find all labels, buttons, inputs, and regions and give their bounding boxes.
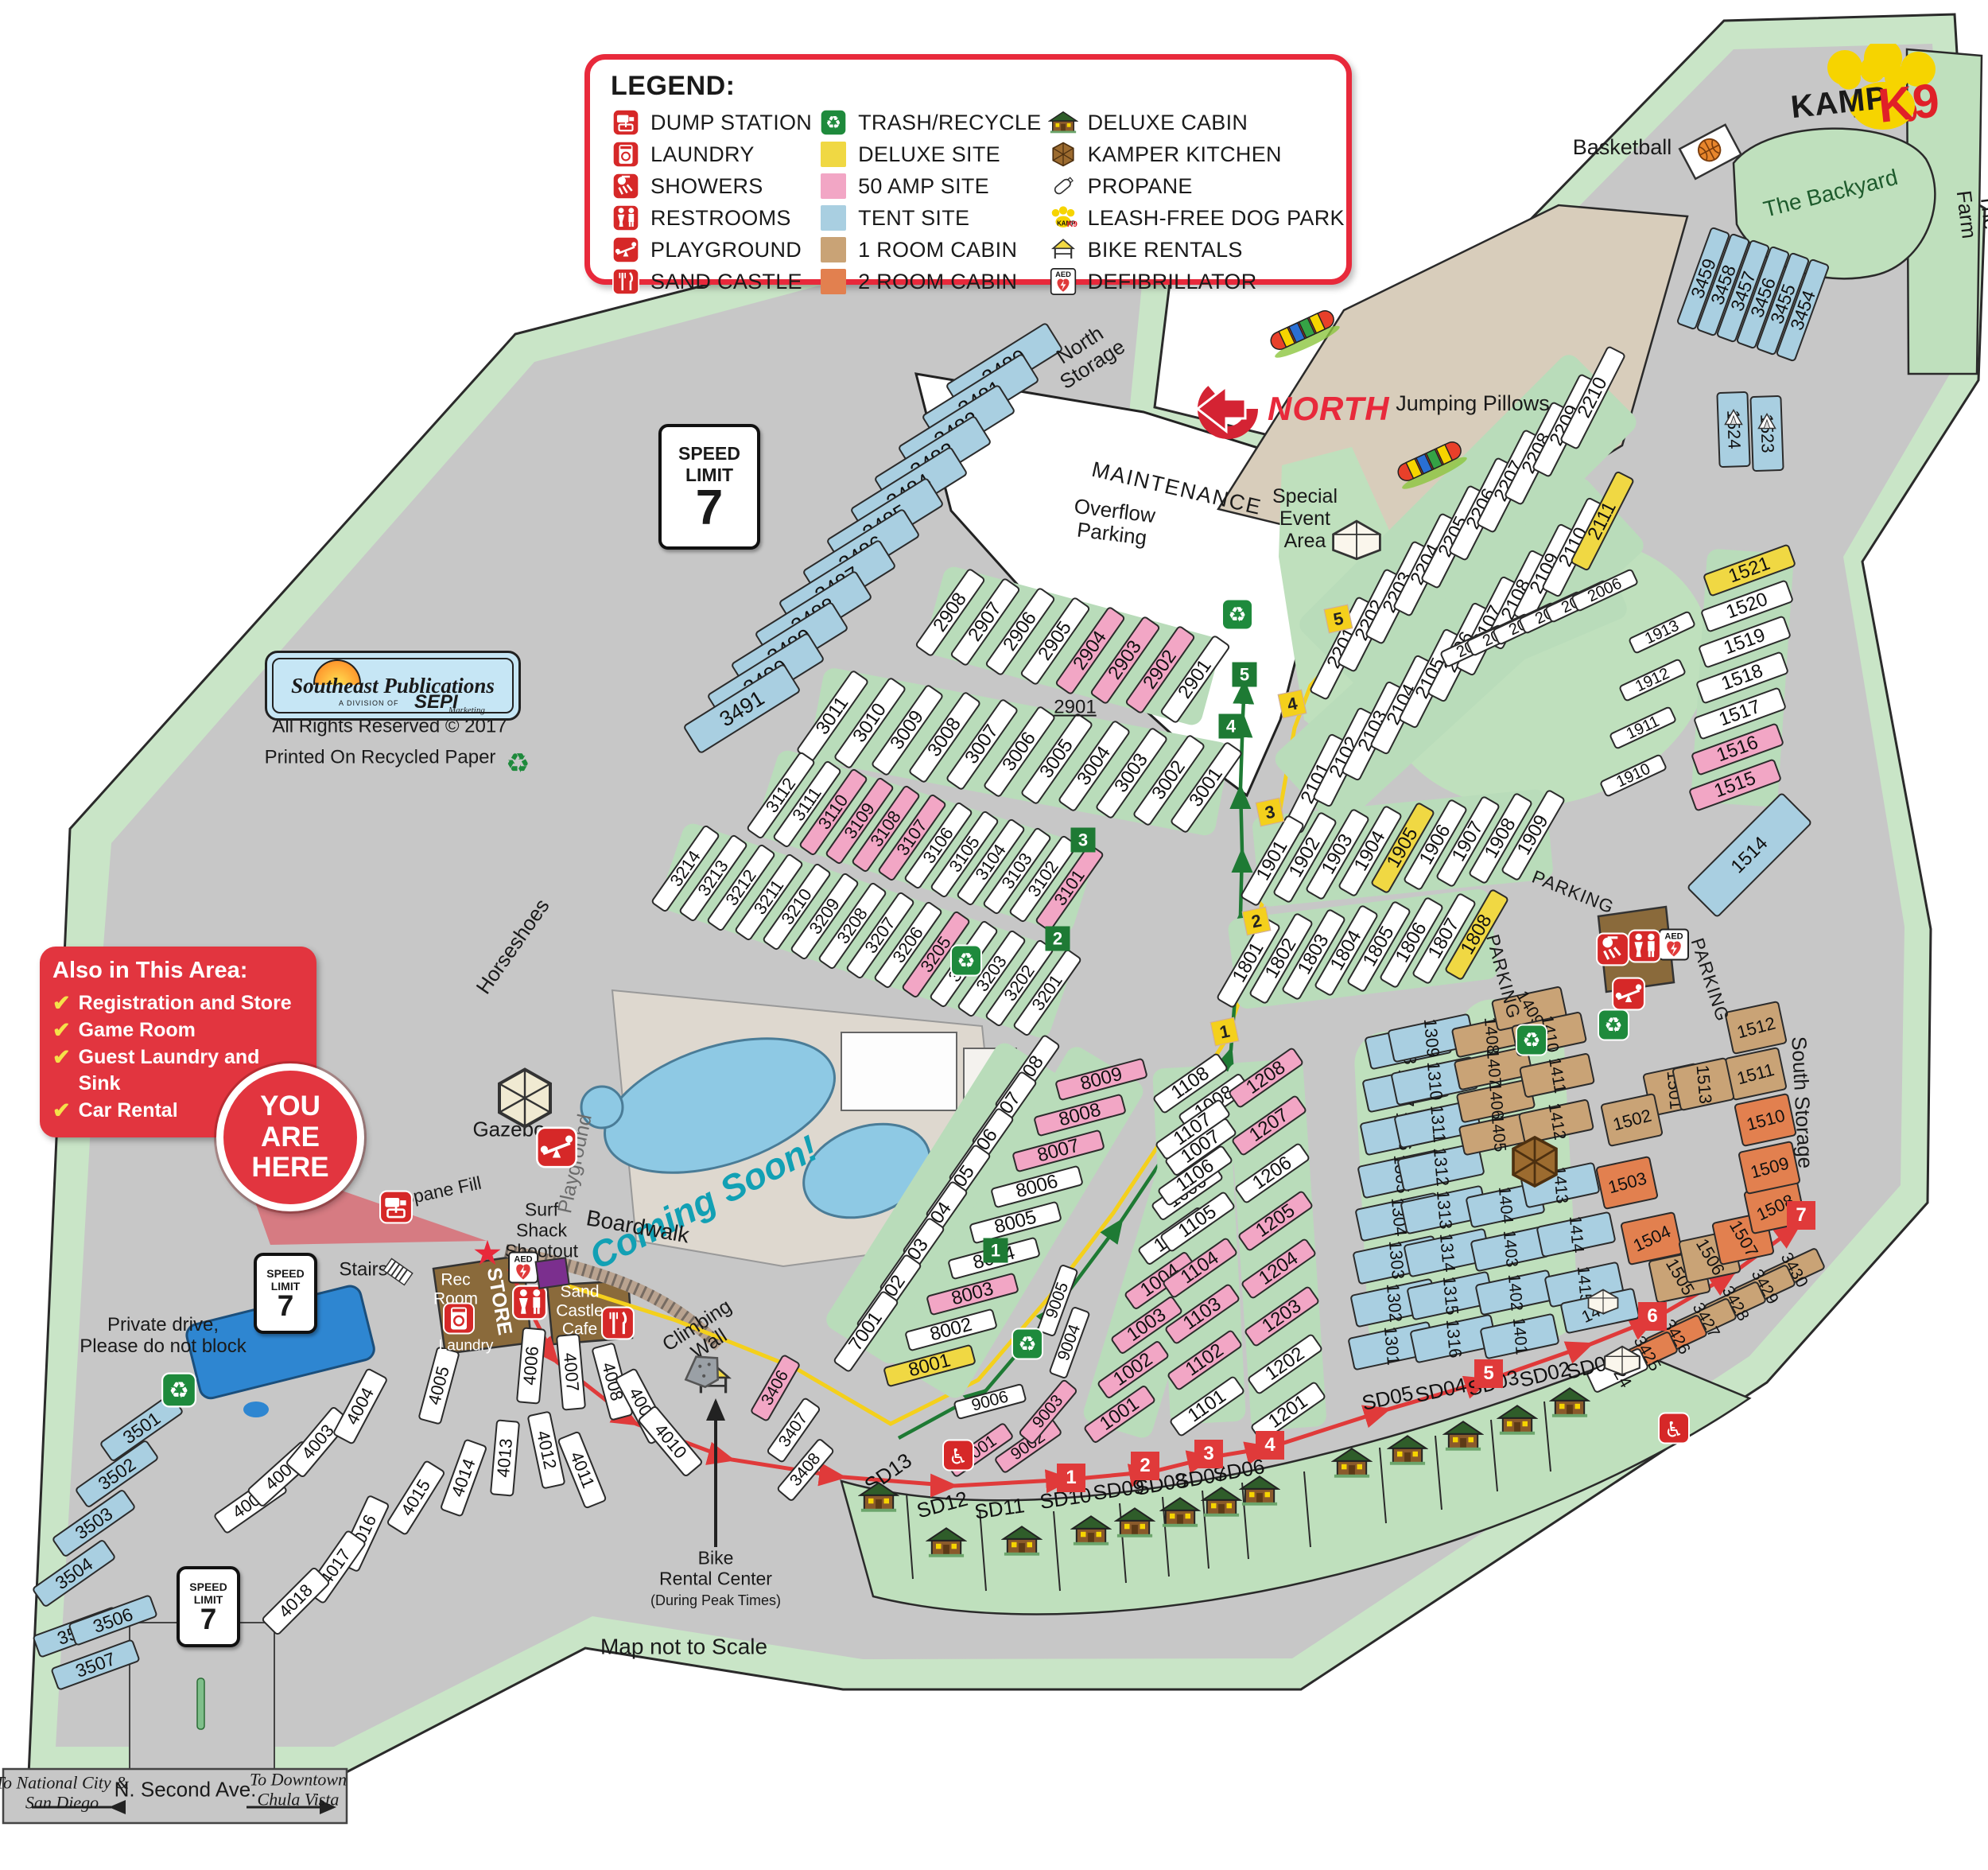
map-label: Printed On Recycled Paper bbox=[265, 748, 496, 769]
route-marker-red-1: 1 bbox=[1057, 1464, 1085, 1492]
star-icon: ★ bbox=[468, 1234, 507, 1277]
map-label: Map not to Scale bbox=[600, 1634, 767, 1658]
site-number: 1503 bbox=[1606, 1168, 1648, 1198]
svg-text:★: ★ bbox=[472, 1234, 503, 1273]
site-number: 1309 bbox=[1419, 1017, 1443, 1058]
legend-item-label: 2 ROOM CABIN bbox=[858, 270, 1017, 294]
deluxe-cabin-icon bbox=[1239, 1475, 1280, 1512]
legend-column: DELUXE CABINKAMPER KITCHENPROPANEKAMPK9L… bbox=[1048, 108, 1345, 296]
restrooms-icon bbox=[611, 204, 641, 232]
svg-text:K9: K9 bbox=[1066, 220, 1077, 229]
also-title: Also in This Area: bbox=[52, 958, 304, 984]
site-number: 1314 bbox=[1435, 1232, 1459, 1273]
also-item-label: Game Room bbox=[79, 1017, 196, 1044]
legend-title: LEGEND: bbox=[611, 71, 1338, 102]
speed-limit-sign: SPEED LIMIT 7 bbox=[177, 1566, 240, 1647]
site-number: 1301 bbox=[1380, 1325, 1404, 1366]
map-label: Bike Rental Center bbox=[659, 1548, 772, 1589]
canopy-icon bbox=[1602, 1343, 1643, 1381]
yah-line: HERE bbox=[251, 1153, 328, 1184]
deluxe-cabin-icon bbox=[1201, 1486, 1242, 1523]
deluxe-cabin-icon bbox=[1001, 1525, 1043, 1562]
site-number: 1512 bbox=[1734, 1013, 1777, 1043]
site-number: 1511 bbox=[1735, 1059, 1776, 1088]
svg-text:♿: ♿ bbox=[949, 1445, 968, 1470]
speed-word: SPEED bbox=[189, 1580, 227, 1593]
playground-icon bbox=[1612, 978, 1645, 1015]
route-marker-green-2: 2 bbox=[1046, 927, 1070, 951]
speed-limit-sign: SPEED LIMIT 7 bbox=[658, 424, 760, 550]
legend-item: 50 AMP SITE bbox=[818, 172, 1041, 200]
route-marker-red-5: 5 bbox=[1474, 1359, 1503, 1388]
showers-icon bbox=[1596, 933, 1629, 970]
legend-item-label: PLAYGROUND bbox=[650, 238, 802, 262]
publisher-division: A DIVISION OF bbox=[339, 699, 399, 707]
legend-item: SAND CASTLE bbox=[611, 267, 812, 296]
map-label: (During Peak Times) bbox=[650, 1592, 781, 1608]
route-marker-green-3: 3 bbox=[1071, 828, 1096, 853]
yah-line: YOU bbox=[260, 1091, 320, 1122]
site-number: 1502 bbox=[1610, 1105, 1653, 1135]
also-item-label: Car Rental bbox=[79, 1098, 178, 1125]
tent-icon bbox=[1722, 406, 1745, 433]
svg-text:♻: ♻ bbox=[957, 950, 975, 974]
north-indicator: NORTH bbox=[1193, 374, 1390, 444]
road-label-chula-vista: To Downtown Chula Vista bbox=[250, 1770, 347, 1809]
site-number: 1411 bbox=[1544, 1056, 1569, 1095]
site-number: 1402 bbox=[1504, 1273, 1526, 1312]
route-marker-yellow-3: 3 bbox=[1256, 798, 1285, 827]
trash-recycle-icon: ♻ bbox=[1011, 1328, 1043, 1364]
speed-word: SPEED bbox=[678, 443, 740, 465]
site-number: 1403 bbox=[1499, 1230, 1521, 1269]
route-marker-red-2: 2 bbox=[1131, 1452, 1159, 1480]
bike-rentals-icon bbox=[1048, 235, 1078, 264]
you-are-here-marker: YOU ARE HERE bbox=[216, 1063, 364, 1211]
svg-text:AED: AED bbox=[514, 1255, 532, 1265]
road-label-national-city: To National City & San Diego bbox=[0, 1773, 129, 1812]
map-label: Special Event Area bbox=[1272, 485, 1338, 552]
route-marker-green-5: 5 bbox=[1233, 663, 1257, 687]
route-marker-red-4: 4 bbox=[1256, 1431, 1284, 1460]
north-label: NORTH bbox=[1268, 390, 1390, 428]
legend-item-label: SHOWERS bbox=[650, 174, 763, 199]
legend-swatch bbox=[821, 237, 846, 262]
legend-item-label: TENT SITE bbox=[858, 206, 969, 231]
check-icon: ✔ bbox=[52, 990, 71, 1016]
svg-text:♻: ♻ bbox=[1522, 1029, 1540, 1053]
route-marker-yellow-4: 4 bbox=[1278, 690, 1307, 719]
kamp-k9-text-k9: K9 bbox=[1876, 72, 1942, 134]
laundry-icon bbox=[443, 1303, 475, 1339]
kamper-kitchen-icon bbox=[1506, 1133, 1563, 1195]
speed-limit-sign: SPEED LIMIT 7 bbox=[254, 1253, 317, 1334]
legend-item: BIKE RENTALS bbox=[1048, 235, 1345, 264]
legend-item-label: LAUNDRY bbox=[650, 142, 755, 167]
speed-value: 7 bbox=[696, 486, 723, 531]
legend-item-label: LEASH-FREE DOG PARK bbox=[1088, 206, 1345, 231]
map-label: 2901 bbox=[1054, 698, 1096, 719]
legend-swatch bbox=[821, 269, 846, 294]
kamp-k9-icon: KAMPK9 bbox=[1048, 204, 1078, 232]
recycled-paper-icon: ♻ bbox=[506, 748, 530, 779]
speed-value: 7 bbox=[278, 1293, 294, 1319]
swatch-yellow-icon bbox=[818, 140, 848, 169]
site-number: 1510 bbox=[1744, 1105, 1787, 1135]
check-icon: ✔ bbox=[52, 1017, 71, 1043]
deluxe-cabin-icon bbox=[1159, 1496, 1201, 1534]
map-label: Laundry bbox=[439, 1337, 494, 1354]
site-number: 1401 bbox=[1508, 1317, 1531, 1356]
deluxe-cabin-icon bbox=[1114, 1506, 1155, 1544]
deluxe-cabin-icon bbox=[1387, 1434, 1428, 1472]
defibrillator-icon: AED bbox=[1658, 929, 1690, 965]
route-marker-red-6: 6 bbox=[1638, 1302, 1667, 1331]
kamp-k9-logo: KAMP K9 bbox=[1789, 44, 1940, 147]
map-label: Sand Castle Cafe bbox=[556, 1283, 604, 1339]
map-label: Jumping Pillows bbox=[1396, 391, 1550, 415]
handicap-icon: ♿ bbox=[942, 1440, 974, 1475]
legend-item-label: DUMP STATION bbox=[650, 111, 812, 135]
svg-text:♻: ♻ bbox=[169, 1376, 189, 1403]
site-number: 1311 bbox=[1426, 1104, 1450, 1143]
legend-item-label: PROPANE bbox=[1088, 174, 1193, 199]
legend-item: 2 ROOM CABIN bbox=[818, 267, 1041, 296]
map-label: The Farm bbox=[1951, 186, 1988, 239]
legend-item: DELUXE SITE bbox=[818, 140, 1041, 169]
site-number: 1313 bbox=[1432, 1189, 1456, 1230]
deluxe-cabin-icon bbox=[1497, 1404, 1538, 1441]
legend-item-label: DELUXE CABIN bbox=[1088, 111, 1248, 135]
legend-item: KAMPK9LEASH-FREE DOG PARK bbox=[1048, 204, 1345, 232]
legend-item-label: BIKE RENTALS bbox=[1088, 238, 1243, 262]
trash-recycle-icon: ♻ bbox=[950, 945, 982, 981]
trash-recycle-icon: ♻ bbox=[1221, 599, 1253, 635]
publisher-name: Southeast Publications bbox=[267, 674, 518, 698]
svg-text:♻: ♻ bbox=[825, 113, 841, 134]
propane-icon bbox=[1048, 172, 1078, 200]
legend-box: LEGEND: DUMP STATIONLAUNDRYSHOWERSRESTRO… bbox=[584, 54, 1352, 285]
deluxe-cabin-icon bbox=[1048, 108, 1078, 137]
site-number: 1513 bbox=[1691, 1063, 1715, 1104]
tent-icon bbox=[1755, 410, 1779, 437]
north-arrow-icon bbox=[1193, 374, 1263, 444]
svg-text:♿: ♿ bbox=[1664, 1418, 1683, 1443]
legend-item: DUMP STATION bbox=[611, 108, 812, 137]
kamper-kitchen-icon bbox=[1048, 140, 1078, 169]
map-label: Private drive, Please do not block bbox=[80, 1315, 246, 1358]
legend-item: PROPANE bbox=[1048, 172, 1345, 200]
purple-building-icon bbox=[534, 1256, 572, 1294]
dump-station-icon bbox=[379, 1191, 413, 1228]
legend-item: AEDDEFIBRILLATOR bbox=[1048, 267, 1345, 296]
site-number: 1414 bbox=[1565, 1215, 1587, 1254]
legend-swatch bbox=[821, 142, 846, 167]
route-marker-green-4: 4 bbox=[1219, 714, 1244, 739]
yah-line: ARE bbox=[261, 1122, 320, 1153]
legend-item: DELUXE CABIN bbox=[1048, 108, 1345, 137]
check-icon: ✔ bbox=[52, 1044, 71, 1070]
route-marker-yellow-5: 5 bbox=[1324, 605, 1353, 634]
svg-text:♻: ♻ bbox=[1018, 1333, 1036, 1357]
laundry-icon bbox=[611, 140, 641, 169]
svg-text:AED: AED bbox=[1664, 932, 1683, 942]
route-marker-green-1: 1 bbox=[984, 1238, 1008, 1263]
site-number: 1310 bbox=[1423, 1060, 1446, 1101]
legend-swatch bbox=[821, 205, 846, 231]
speed-value: 7 bbox=[200, 1606, 217, 1632]
legend-swatch bbox=[821, 173, 846, 199]
trash-recycle-icon: ♻ bbox=[161, 1373, 196, 1412]
legend-item-label: DEFIBRILLATOR bbox=[1088, 270, 1257, 294]
publisher-marketing: Marketing bbox=[448, 706, 485, 715]
legend-column: ♻TRASH/RECYCLEDELUXE SITE50 AMP SITETENT… bbox=[818, 108, 1041, 296]
legend-item: RESTROOMS bbox=[611, 204, 812, 232]
canopy-icon bbox=[1586, 1287, 1621, 1319]
legend-item-label: 50 AMP SITE bbox=[858, 174, 989, 199]
site-number: 4006 bbox=[519, 1345, 543, 1386]
route-marker-yellow-1: 1 bbox=[1210, 1017, 1240, 1047]
site-number: 1509 bbox=[1748, 1153, 1791, 1183]
speed-word: SPEED bbox=[266, 1267, 304, 1280]
showers-icon bbox=[611, 172, 641, 200]
swatch-pink-icon bbox=[818, 172, 848, 200]
check-icon: ✔ bbox=[52, 1098, 71, 1123]
deluxe-cabin-icon bbox=[1442, 1420, 1484, 1457]
deluxe-cabin-icon bbox=[1549, 1386, 1590, 1424]
deluxe-cabin-icon bbox=[1070, 1514, 1112, 1552]
dump-station-icon bbox=[611, 108, 641, 137]
legend-column: DUMP STATIONLAUNDRYSHOWERSRESTROOMSPLAYG… bbox=[611, 108, 812, 296]
map-label: Basketball bbox=[1573, 135, 1672, 159]
map-canvas: LEGEND: DUMP STATIONLAUNDRYSHOWERSRESTRO… bbox=[0, 0, 1988, 1870]
sand-castle-icon bbox=[611, 267, 641, 296]
trash-recycle-icon: ♻ bbox=[1516, 1024, 1547, 1060]
also-item-label: Registration and Store bbox=[79, 990, 292, 1017]
restrooms-icon bbox=[1628, 930, 1661, 967]
legend-item-label: TRASH/RECYCLE bbox=[858, 111, 1041, 135]
road-label-n-second-ave: N. Second Ave. bbox=[115, 1778, 257, 1801]
sand-castle-icon bbox=[601, 1307, 635, 1344]
trash-recycle-icon: ♻ bbox=[818, 108, 848, 137]
legend-item-label: 1 ROOM CABIN bbox=[858, 238, 1017, 262]
swatch-cabin_tan-icon bbox=[818, 235, 848, 264]
legend-item-label: DELUXE SITE bbox=[858, 142, 1000, 167]
legend-item: LAUNDRY bbox=[611, 140, 812, 169]
site-number: 1504 bbox=[1629, 1221, 1673, 1256]
legend-item-label: RESTROOMS bbox=[650, 206, 791, 231]
legend-item: ♻TRASH/RECYCLE bbox=[818, 108, 1041, 137]
legend-item: PLAYGROUND bbox=[611, 235, 812, 264]
route-marker-red-3: 3 bbox=[1194, 1440, 1223, 1468]
legend-item-label: KAMPER KITCHEN bbox=[1088, 142, 1282, 167]
also-item: ✔Game Room bbox=[52, 1017, 304, 1044]
svg-text:AED: AED bbox=[1055, 270, 1071, 278]
gazebo-icon bbox=[493, 1067, 557, 1134]
route-marker-red-7: 7 bbox=[1787, 1201, 1815, 1230]
also-item: ✔Registration and Store bbox=[52, 990, 304, 1017]
campground-map-screenshot: { "colors":{"site_white":"#ffffff","pink… bbox=[0, 0, 1988, 1870]
defibrillator-icon: AED bbox=[1048, 267, 1078, 296]
route-marker-yellow-2: 2 bbox=[1242, 907, 1272, 936]
site-number: 1312 bbox=[1429, 1146, 1453, 1187]
handicap-icon: ♿ bbox=[1658, 1413, 1690, 1448]
playground-icon bbox=[611, 235, 641, 264]
legend-item-label: SAND CASTLE bbox=[650, 270, 802, 294]
site-number: 4013 bbox=[493, 1437, 517, 1478]
legend-item: TENT SITE bbox=[818, 204, 1041, 232]
site-number: 1315 bbox=[1439, 1275, 1462, 1316]
legend-item: SHOWERS bbox=[611, 172, 812, 200]
publisher-logo: Southeast Publications A DIVISION OF SEP… bbox=[265, 651, 521, 721]
svg-text:♻: ♻ bbox=[1228, 604, 1246, 628]
canopy-icon bbox=[1329, 517, 1384, 566]
svg-text:♻: ♻ bbox=[1604, 1014, 1622, 1038]
site-number: 1302 bbox=[1382, 1282, 1406, 1323]
map-label: Overflow Parking bbox=[1070, 495, 1157, 550]
site-number: 1316 bbox=[1442, 1318, 1466, 1359]
swatch-cabin_orange-icon bbox=[818, 267, 848, 296]
deluxe-cabin-icon bbox=[926, 1526, 967, 1564]
legend-item: KAMPER KITCHEN bbox=[1048, 140, 1345, 169]
swatch-tent_blue-icon bbox=[818, 204, 848, 232]
deluxe-cabin-icon bbox=[1331, 1447, 1373, 1484]
legend-item: 1 ROOM CABIN bbox=[818, 235, 1041, 264]
site-number: 4007 bbox=[559, 1351, 583, 1392]
map-label: Stairs bbox=[339, 1260, 387, 1281]
deluxe-cabin-icon bbox=[858, 1481, 899, 1518]
